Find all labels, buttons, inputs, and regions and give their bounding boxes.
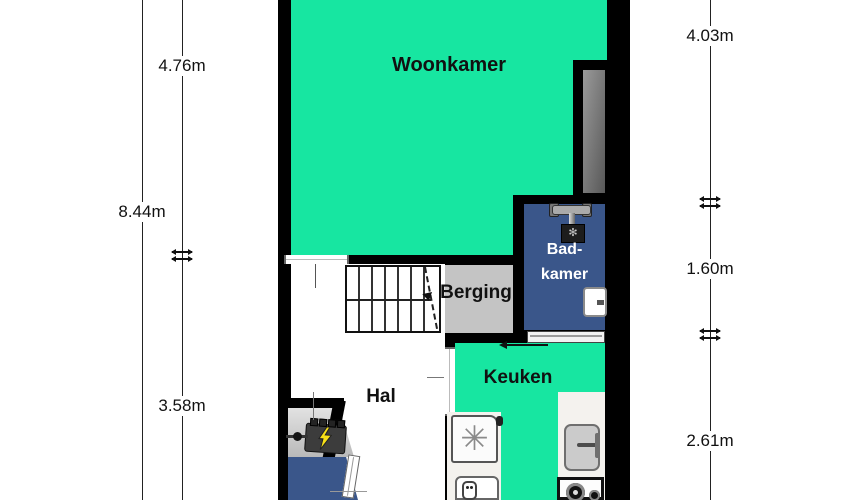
dimension-right-top: 4.03m — [683, 26, 736, 46]
opening-mark — [427, 377, 444, 378]
sliding-door-arrow-line — [506, 344, 548, 346]
stove-burner-small — [589, 490, 600, 500]
label-berging: Berging — [426, 282, 526, 304]
doorway-woonkamer-hal — [284, 255, 349, 264]
sliding-door-badkamer — [527, 331, 605, 343]
dimension-tick-right-upper — [700, 198, 720, 207]
shaft-niche — [583, 70, 605, 193]
label-keuken: Keuken — [468, 367, 568, 389]
outlet-icon — [462, 481, 477, 500]
label-badkamer: Bad- kamer — [524, 237, 605, 287]
dimension-right-bottom: 2.61m — [683, 431, 736, 451]
floorplan: ✻ ✳ Woonkamer Bad- kamer Berging Keuken … — [0, 0, 850, 500]
sliding-door-arrow-icon — [499, 341, 507, 349]
washbasin-icon — [583, 287, 607, 317]
dimension-tick-right-lower — [700, 330, 720, 339]
dimension-left-bottom: 3.58m — [155, 396, 208, 416]
lightning-bolt-icon — [317, 427, 333, 451]
fan-icon: ✳ — [451, 415, 498, 463]
sink-handle — [595, 433, 600, 458]
dimension-left-total: 8.44m — [115, 202, 168, 222]
threshold-line — [330, 491, 367, 492]
dimension-left-top: 4.76m — [155, 56, 208, 76]
room-woonkamer-lower — [291, 0, 513, 255]
meter-knob — [293, 432, 302, 441]
dimension-tick-left — [172, 251, 192, 260]
fan-box-knob — [496, 416, 503, 426]
meter-closet-door-leaf — [313, 392, 314, 420]
doorway-hal-keuken — [445, 347, 455, 416]
label-hal: Hal — [341, 386, 421, 408]
dimension-line-left-outer — [142, 0, 143, 500]
dimension-right-middle: 1.60m — [683, 259, 736, 279]
stove-burner-large — [566, 483, 585, 500]
door-leaf-woonkamer — [315, 264, 316, 288]
dimension-line-right — [710, 0, 711, 500]
label-woonkamer: Woonkamer — [349, 54, 549, 77]
meter-box-icon — [304, 423, 347, 455]
